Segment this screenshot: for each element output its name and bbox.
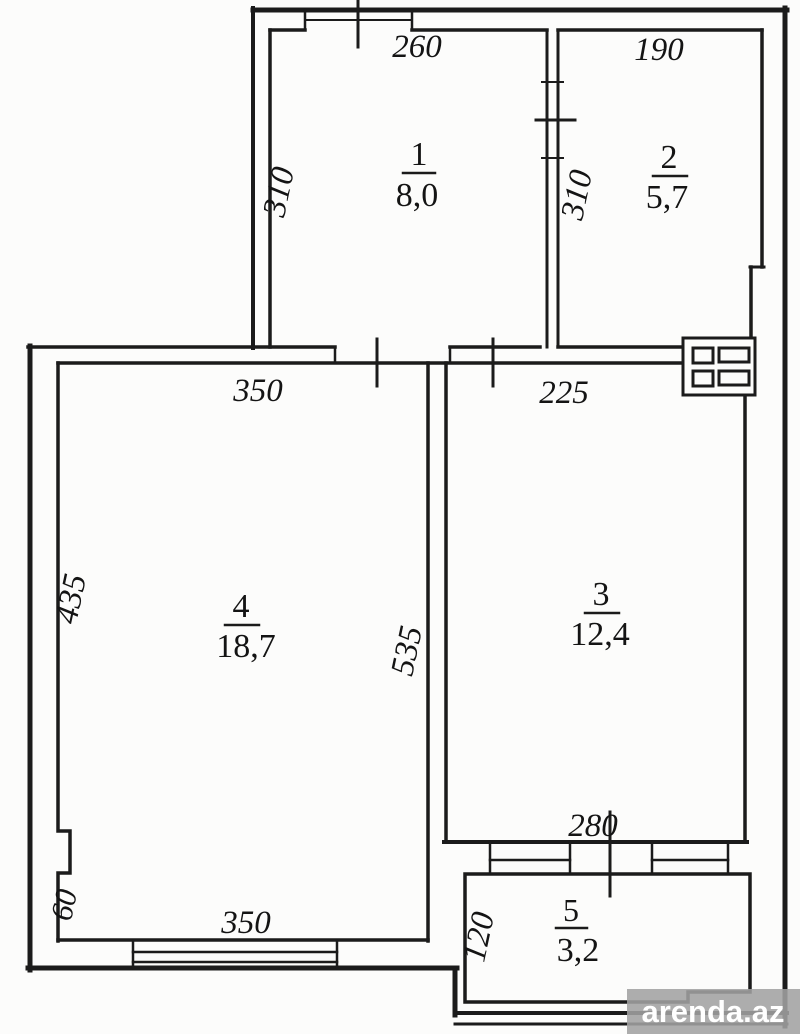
room-3-label: 3 12,4 [570, 576, 630, 653]
room-1-area: 8,0 [396, 177, 439, 214]
dim-room2-width: 190 [634, 32, 684, 68]
floorplan-page: 260 190 310 310 350 225 435 535 280 60 3… [0, 0, 800, 1034]
balcony-outline [465, 874, 750, 1002]
partition-walls [28, 30, 764, 941]
dim-room3-height: 535 [384, 623, 430, 679]
window-balcony-left [490, 842, 570, 874]
vent-shaft [683, 338, 755, 395]
dim-room4-height: 435 [48, 571, 94, 627]
floorplan-svg: 260 190 310 310 350 225 435 535 280 60 3… [0, 0, 800, 1034]
watermark: arenda.az [627, 989, 800, 1034]
dim-room1-height: 310 [256, 163, 302, 220]
window-balcony-right [652, 842, 728, 874]
room-5-area: 3,2 [557, 932, 600, 969]
watermark-label: arenda.az [641, 994, 784, 1029]
window-room4-bottom [133, 941, 337, 968]
windows [133, 10, 728, 968]
dim-room1-width: 260 [392, 29, 442, 65]
dim-room4-width-bottom: 350 [220, 905, 271, 941]
dim-room4-width-top: 350 [232, 373, 283, 409]
room-4-number: 4 [233, 588, 250, 625]
room-4-area: 18,7 [216, 628, 276, 665]
dimension-ticks [358, 0, 610, 896]
room-5-number: 5 [563, 892, 579, 928]
room-1-number: 1 [411, 136, 428, 173]
room-1-label: 1 8,0 [396, 136, 439, 214]
dim-room2-height: 310 [554, 166, 600, 223]
room-2-area: 5,7 [646, 179, 689, 216]
dimension-labels: 260 190 310 310 350 225 435 535 280 60 3… [43, 29, 684, 965]
dim-room3-bottom: 280 [568, 808, 618, 844]
room-3-area: 12,4 [570, 616, 630, 653]
room-5-label: 5 3,2 [556, 892, 599, 969]
dim-room3-width: 225 [539, 375, 589, 411]
room-3-number: 3 [593, 576, 610, 613]
room-2-number: 2 [661, 139, 678, 176]
room-2-label: 2 5,7 [646, 139, 689, 216]
dim-room4-step: 60 [43, 886, 84, 924]
room-4-label: 4 18,7 [216, 588, 276, 665]
room-labels: 1 8,0 2 5,7 3 12,4 4 18,7 5 3,2 [216, 136, 688, 969]
